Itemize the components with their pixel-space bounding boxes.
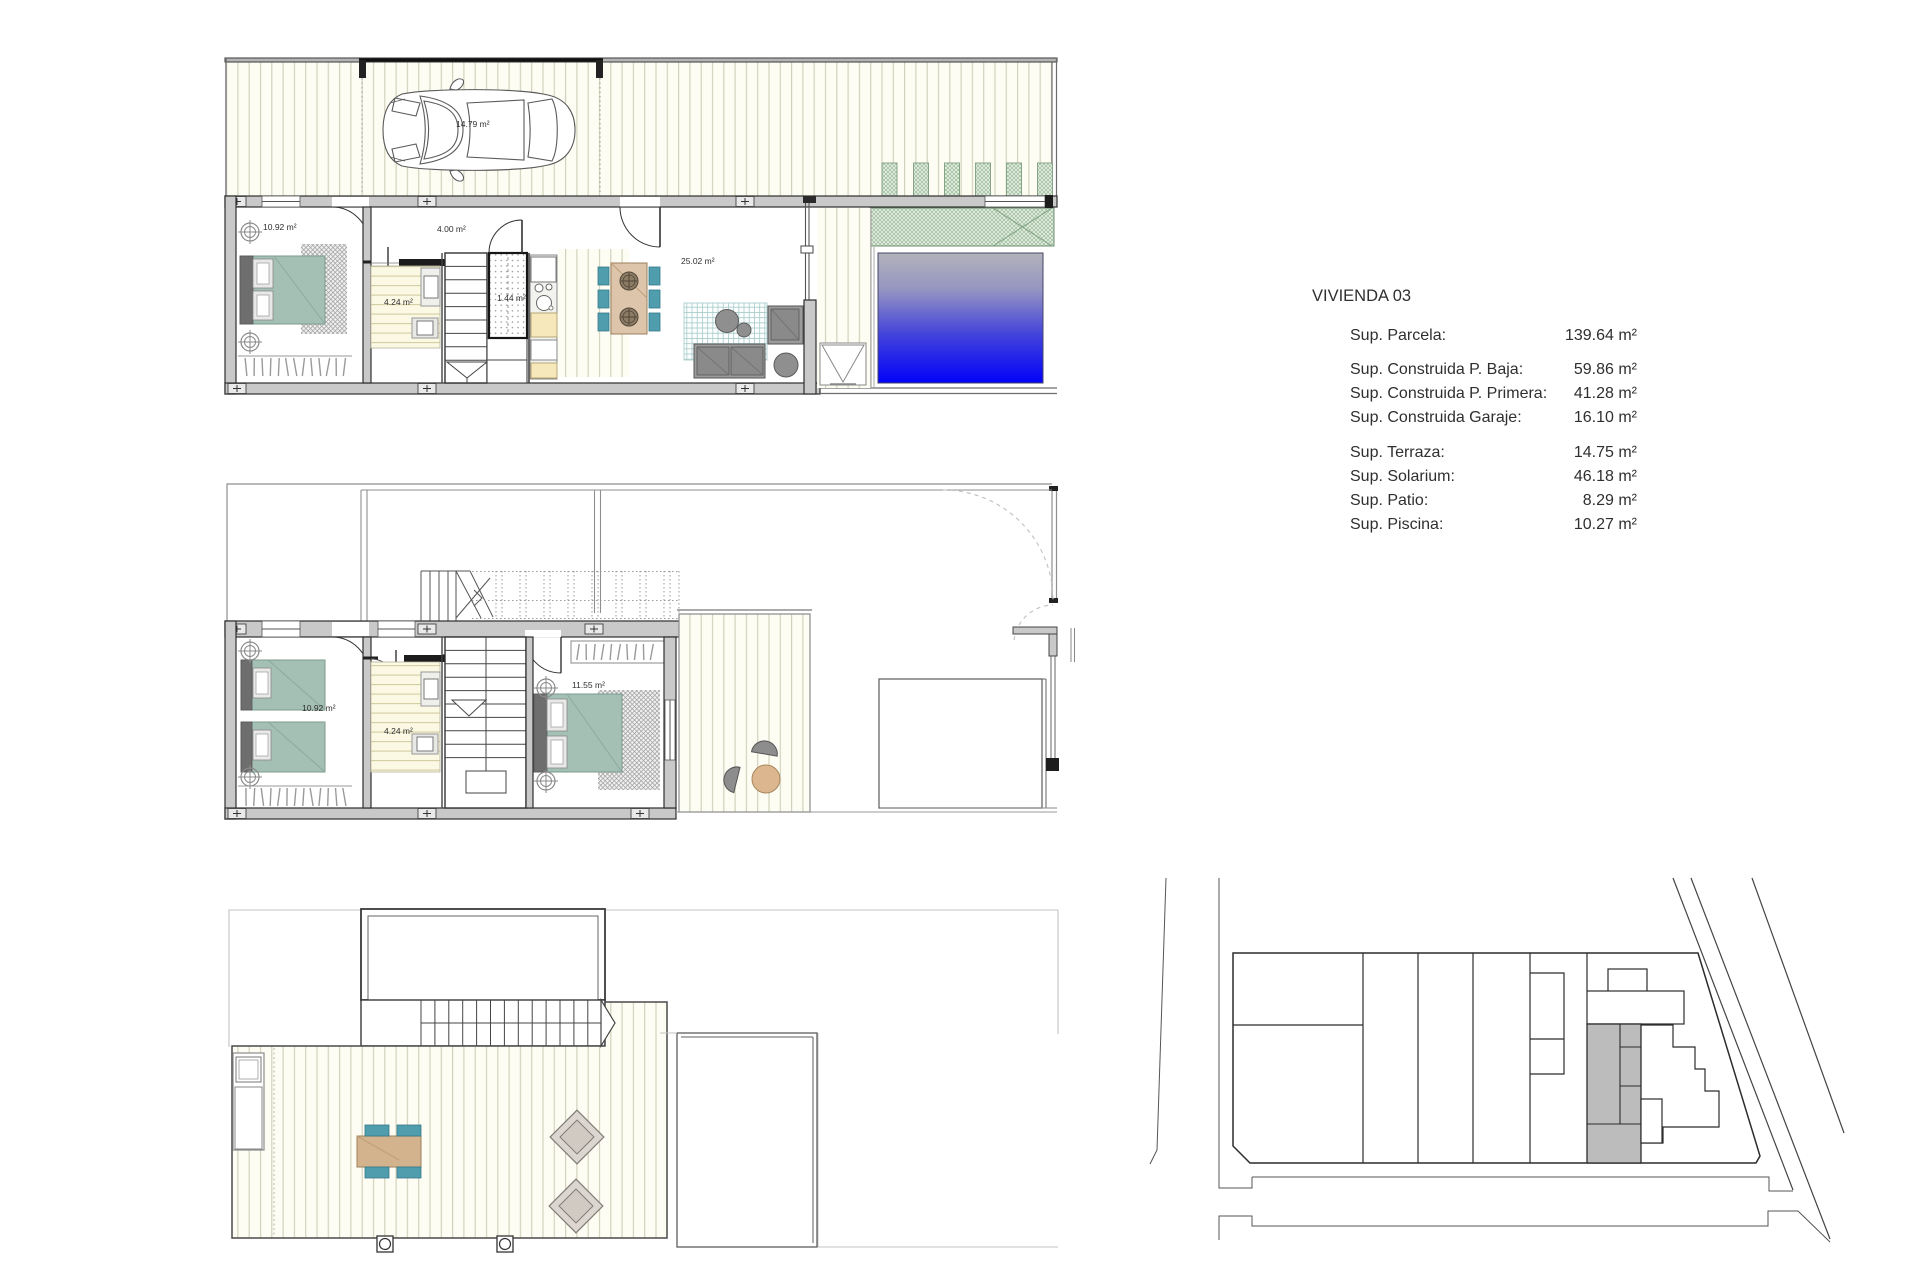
svg-text:139.64 m²: 139.64 m² [1565,327,1638,344]
svg-text:4.24 m²: 4.24 m² [384,297,413,307]
svg-text:4.24 m²: 4.24 m² [384,726,413,736]
svg-text:Sup. Parcela:: Sup. Parcela: [1350,327,1446,344]
svg-text:Sup. Piscina:: Sup. Piscina: [1350,516,1443,533]
svg-text:Sup. Patio:: Sup. Patio: [1350,492,1428,509]
svg-text:10.92 m²: 10.92 m² [302,703,336,713]
svg-text:41.28 m²: 41.28 m² [1574,385,1638,402]
svg-text:8.29 m²: 8.29 m² [1583,492,1638,509]
svg-text:14.79 m²: 14.79 m² [456,119,490,129]
svg-text:59.86 m²: 59.86 m² [1574,361,1638,378]
svg-text:Sup. Construida Garaje:: Sup. Construida Garaje: [1350,409,1522,426]
svg-text:10.92 m²: 10.92 m² [263,222,297,232]
svg-text:11.55 m²: 11.55 m² [572,680,605,690]
svg-text:14.75 m²: 14.75 m² [1574,444,1638,461]
svg-text:4.00 m²: 4.00 m² [437,224,466,234]
svg-text:Sup. Terraza:: Sup. Terraza: [1350,444,1445,461]
svg-text:10.27 m²: 10.27 m² [1574,516,1638,533]
svg-text:Sup. Solarium:: Sup. Solarium: [1350,468,1455,485]
svg-text:16.10 m²: 16.10 m² [1574,409,1638,426]
svg-text:1.44 m²: 1.44 m² [497,293,526,303]
svg-text:VIVIENDA 03: VIVIENDA 03 [1312,287,1411,305]
svg-text:46.18 m²: 46.18 m² [1574,468,1638,485]
svg-text:Sup. Construida P. Primera:: Sup. Construida P. Primera: [1350,385,1547,402]
svg-text:25.02 m²: 25.02 m² [681,256,715,266]
svg-text:Sup. Construida P. Baja:: Sup. Construida P. Baja: [1350,361,1523,378]
